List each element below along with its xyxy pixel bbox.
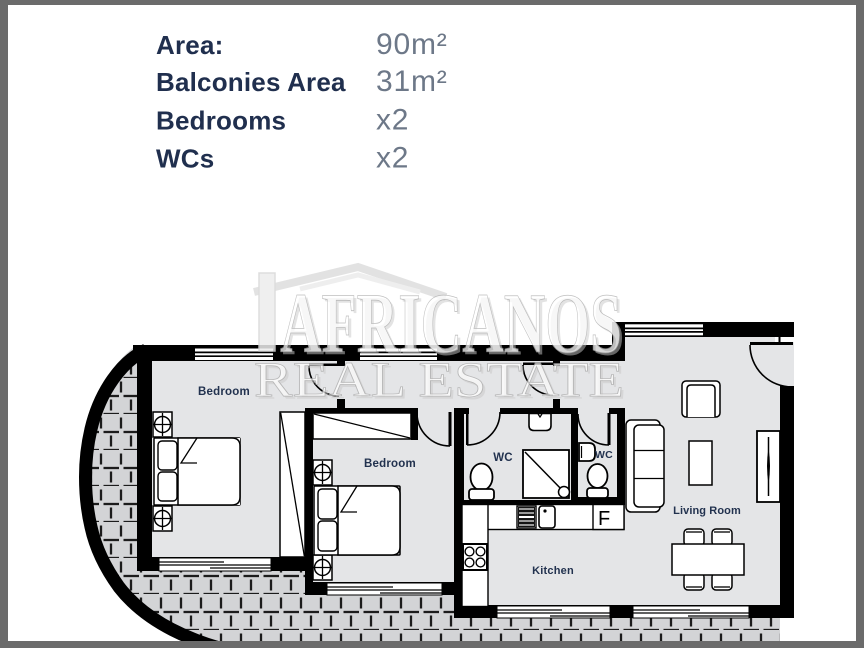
- svg-text:Bedroom: Bedroom: [364, 458, 416, 470]
- svg-text:x2: x2: [376, 104, 409, 137]
- svg-text:WCs: WCs: [156, 144, 214, 174]
- svg-text:Area:: Area:: [156, 30, 223, 60]
- svg-text:31m²: 31m²: [376, 65, 448, 98]
- svg-text:WC: WC: [595, 449, 613, 461]
- svg-text:Kitchen: Kitchen: [532, 565, 574, 577]
- svg-text:Bedroom: Bedroom: [198, 386, 250, 398]
- svg-text:REAL ESTATE: REAL ESTATE: [254, 351, 624, 407]
- svg-text:Balconies Area: Balconies Area: [156, 67, 346, 97]
- svg-text:WC: WC: [493, 452, 513, 464]
- svg-text:F: F: [598, 508, 610, 530]
- svg-text:Bedrooms: Bedrooms: [156, 106, 286, 136]
- svg-text:Living Room: Living Room: [673, 505, 741, 517]
- svg-text:90m²: 90m²: [376, 28, 448, 61]
- svg-text:x2: x2: [376, 142, 409, 175]
